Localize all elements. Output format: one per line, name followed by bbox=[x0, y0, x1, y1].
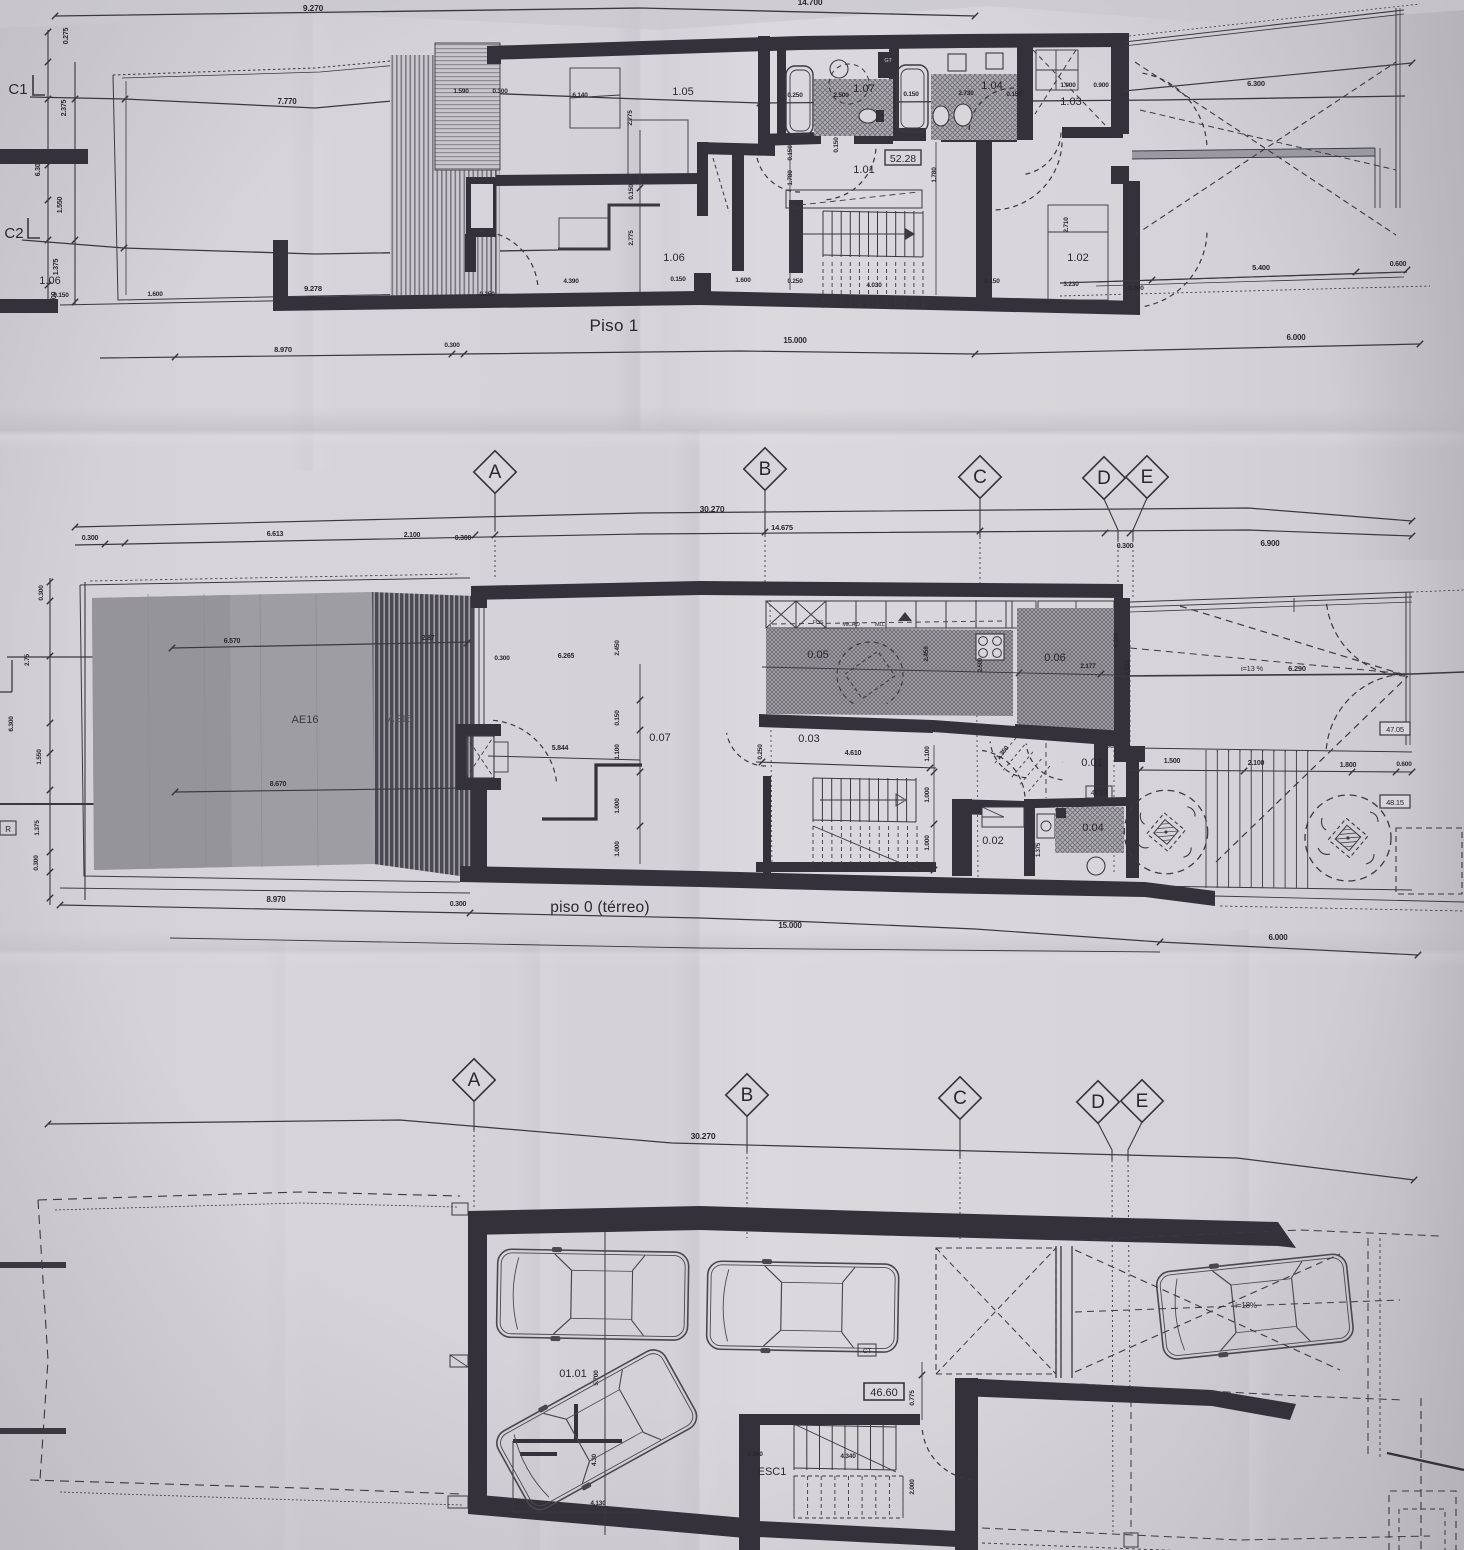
svg-text:2.375: 2.375 bbox=[61, 99, 68, 116]
svg-text:0.300: 0.300 bbox=[38, 585, 45, 601]
svg-text:0.300: 0.300 bbox=[494, 655, 510, 662]
svg-text:0.300: 0.300 bbox=[33, 855, 40, 871]
svg-text:1.500: 1.500 bbox=[1164, 758, 1181, 765]
svg-text:0.150: 0.150 bbox=[903, 91, 919, 98]
svg-text:6.300: 6.300 bbox=[8, 716, 15, 732]
svg-text:0.150: 0.150 bbox=[984, 278, 1000, 285]
svg-text:1.000: 1.000 bbox=[614, 841, 621, 857]
svg-text:47.05: 47.05 bbox=[1386, 725, 1404, 734]
svg-text:0.900: 0.900 bbox=[1093, 82, 1109, 89]
svg-text:14.700: 14.700 bbox=[798, 0, 823, 7]
svg-text:15.000: 15.000 bbox=[778, 921, 802, 930]
svg-text:15.000: 15.000 bbox=[783, 336, 807, 345]
svg-text:6.613: 6.613 bbox=[267, 531, 284, 538]
svg-text:1.07: 1.07 bbox=[853, 83, 874, 95]
svg-text:48.15: 48.15 bbox=[1386, 798, 1404, 807]
svg-text:14.675: 14.675 bbox=[771, 523, 793, 532]
svg-text:1.100: 1.100 bbox=[614, 744, 621, 760]
svg-text:2.177: 2.177 bbox=[1080, 663, 1096, 670]
svg-text:30.270: 30.270 bbox=[700, 504, 725, 514]
svg-text:0.600: 0.600 bbox=[1390, 261, 1407, 268]
svg-text:C1: C1 bbox=[8, 81, 27, 98]
svg-text:0.150: 0.150 bbox=[833, 137, 840, 153]
svg-text:i=13 %: i=13 % bbox=[1241, 664, 1263, 673]
svg-text:D: D bbox=[1091, 1092, 1105, 1113]
svg-text:8.970: 8.970 bbox=[266, 895, 286, 904]
svg-text:0.260: 0.260 bbox=[747, 1451, 763, 1458]
svg-text:0.05: 0.05 bbox=[807, 649, 828, 661]
svg-text:2.775: 2.775 bbox=[628, 230, 635, 246]
svg-text:01.01: 01.01 bbox=[559, 1368, 587, 1380]
svg-text:6.570: 6.570 bbox=[224, 638, 241, 645]
svg-text:46.60: 46.60 bbox=[870, 1387, 898, 1399]
svg-text:5.400: 5.400 bbox=[1252, 263, 1270, 272]
svg-text:B: B bbox=[741, 1085, 754, 1106]
svg-text:ESC1: ESC1 bbox=[758, 1466, 787, 1478]
svg-text:R: R bbox=[5, 825, 11, 834]
svg-text:30.270: 30.270 bbox=[691, 1131, 716, 1141]
svg-text:0.300: 0.300 bbox=[1117, 543, 1134, 550]
svg-text:1.02: 1.02 bbox=[1067, 252, 1088, 264]
svg-text:E: E bbox=[1141, 467, 1154, 488]
svg-text:0.150: 0.150 bbox=[670, 276, 686, 283]
svg-text:0.275: 0.275 bbox=[63, 27, 70, 44]
svg-text:4.610: 4.610 bbox=[845, 750, 862, 757]
svg-text:1.800: 1.800 bbox=[1340, 762, 1357, 769]
svg-text:2.730: 2.730 bbox=[958, 90, 974, 97]
svg-text:1.550: 1.550 bbox=[36, 749, 43, 765]
svg-text:1.375: 1.375 bbox=[34, 820, 41, 836]
svg-text:6.000: 6.000 bbox=[1286, 333, 1306, 342]
svg-text:0.04: 0.04 bbox=[1082, 822, 1103, 834]
svg-text:0.300: 0.300 bbox=[455, 535, 472, 542]
svg-text:6.300: 6.300 bbox=[1247, 79, 1265, 88]
svg-text:AE15: AE15 bbox=[388, 714, 413, 725]
svg-text:0.150: 0.150 bbox=[628, 184, 635, 200]
svg-text:1.000: 1.000 bbox=[924, 787, 931, 803]
svg-text:A: A bbox=[489, 462, 502, 483]
svg-text:2.500: 2.500 bbox=[833, 92, 849, 99]
svg-text:E: E bbox=[1136, 1091, 1149, 1112]
svg-text:0.250: 0.250 bbox=[479, 291, 495, 298]
svg-text:1.04: 1.04 bbox=[981, 80, 1002, 92]
svg-text:5.844: 5.844 bbox=[552, 745, 569, 752]
svg-text:0.150: 0.150 bbox=[614, 710, 621, 726]
svg-text:CT: CT bbox=[863, 1348, 871, 1355]
svg-text:1.375: 1.375 bbox=[1036, 842, 1042, 857]
svg-text:8.670: 8.670 bbox=[270, 781, 287, 788]
svg-text:2.500: 2.500 bbox=[978, 657, 984, 672]
svg-text:1.375: 1.375 bbox=[53, 258, 60, 275]
svg-text:0.775: 0.775 bbox=[909, 1390, 916, 1406]
svg-text:1.000: 1.000 bbox=[614, 798, 621, 814]
svg-text:0.600: 0.600 bbox=[1396, 761, 1412, 768]
svg-text:AE16: AE16 bbox=[292, 714, 319, 726]
svg-text:1.05: 1.05 bbox=[672, 86, 693, 98]
svg-text:0.03: 0.03 bbox=[798, 733, 819, 745]
svg-text:1.780: 1.780 bbox=[931, 167, 938, 183]
svg-text:1.06: 1.06 bbox=[663, 252, 684, 264]
svg-text:9.270: 9.270 bbox=[303, 3, 324, 13]
svg-text:0.02: 0.02 bbox=[982, 835, 1003, 847]
svg-text:0.250: 0.250 bbox=[787, 92, 803, 99]
svg-text:0.150: 0.150 bbox=[53, 292, 69, 299]
svg-text:0.300: 0.300 bbox=[82, 535, 99, 542]
svg-text:2.458: 2.458 bbox=[923, 646, 930, 662]
svg-text:0.228: 0.228 bbox=[1124, 660, 1131, 676]
svg-text:1.780: 1.780 bbox=[787, 170, 794, 186]
svg-text:Piso 1: Piso 1 bbox=[589, 316, 638, 335]
svg-text:GT: GT bbox=[884, 58, 892, 64]
svg-text:0.06: 0.06 bbox=[1044, 652, 1065, 664]
svg-text:4.390: 4.390 bbox=[563, 278, 579, 285]
svg-text:6.290: 6.290 bbox=[1288, 664, 1306, 673]
svg-text:1.550: 1.550 bbox=[57, 196, 64, 213]
svg-text:7.770: 7.770 bbox=[277, 97, 297, 106]
svg-text:C: C bbox=[973, 467, 987, 488]
svg-text:6.265: 6.265 bbox=[558, 653, 575, 660]
svg-text:49.23: 49.23 bbox=[1091, 790, 1108, 797]
svg-text:52.28: 52.28 bbox=[890, 153, 916, 165]
svg-text:2.75: 2.75 bbox=[24, 653, 31, 665]
svg-text:0.07: 0.07 bbox=[649, 732, 670, 744]
svg-text:1.100: 1.100 bbox=[924, 746, 931, 762]
svg-text:0.150: 0.150 bbox=[1006, 91, 1022, 98]
svg-text:C: C bbox=[953, 1088, 967, 1109]
svg-text:6.000: 6.000 bbox=[1268, 933, 1288, 942]
svg-text:1.01: 1.01 bbox=[853, 164, 874, 176]
svg-text:0.300: 0.300 bbox=[1114, 632, 1120, 647]
svg-text:2.000: 2.000 bbox=[909, 1479, 916, 1495]
svg-text:2.87: 2.87 bbox=[422, 635, 435, 642]
svg-text:2.450: 2.450 bbox=[614, 640, 621, 656]
svg-text:8.970: 8.970 bbox=[274, 345, 292, 354]
svg-text:1.600: 1.600 bbox=[735, 277, 751, 284]
svg-text:4.130: 4.130 bbox=[590, 1500, 606, 1507]
svg-text:2.100: 2.100 bbox=[1248, 760, 1265, 767]
svg-text:B: B bbox=[759, 459, 772, 480]
svg-text:0.01: 0.01 bbox=[1081, 757, 1102, 769]
svg-text:2.710: 2.710 bbox=[1063, 217, 1070, 233]
svg-text:D: D bbox=[1097, 468, 1111, 489]
svg-text:0.300: 0.300 bbox=[1128, 285, 1144, 292]
svg-text:1.06: 1.06 bbox=[39, 275, 60, 287]
svg-text:C2: C2 bbox=[4, 225, 23, 242]
svg-text:1.000: 1.000 bbox=[924, 835, 931, 851]
svg-text:0.250: 0.250 bbox=[757, 744, 764, 760]
svg-text:1.590: 1.590 bbox=[453, 88, 469, 95]
svg-text:piso 0 (térreo): piso 0 (térreo) bbox=[550, 899, 649, 916]
svg-text:9.278: 9.278 bbox=[304, 284, 322, 293]
svg-text:1.000: 1.000 bbox=[1060, 82, 1076, 89]
svg-text:0.300: 0.300 bbox=[444, 342, 460, 349]
svg-text:0.250: 0.250 bbox=[787, 278, 803, 285]
svg-text:2.100: 2.100 bbox=[404, 532, 421, 539]
svg-text:0.300: 0.300 bbox=[450, 901, 467, 908]
svg-text:0.150: 0.150 bbox=[787, 145, 794, 161]
svg-text:1.600: 1.600 bbox=[147, 291, 163, 298]
svg-text:6.900: 6.900 bbox=[1260, 539, 1280, 548]
svg-text:A: A bbox=[468, 1070, 481, 1091]
svg-text:0.300: 0.300 bbox=[492, 88, 508, 95]
svg-text:4.340: 4.340 bbox=[840, 1453, 856, 1460]
